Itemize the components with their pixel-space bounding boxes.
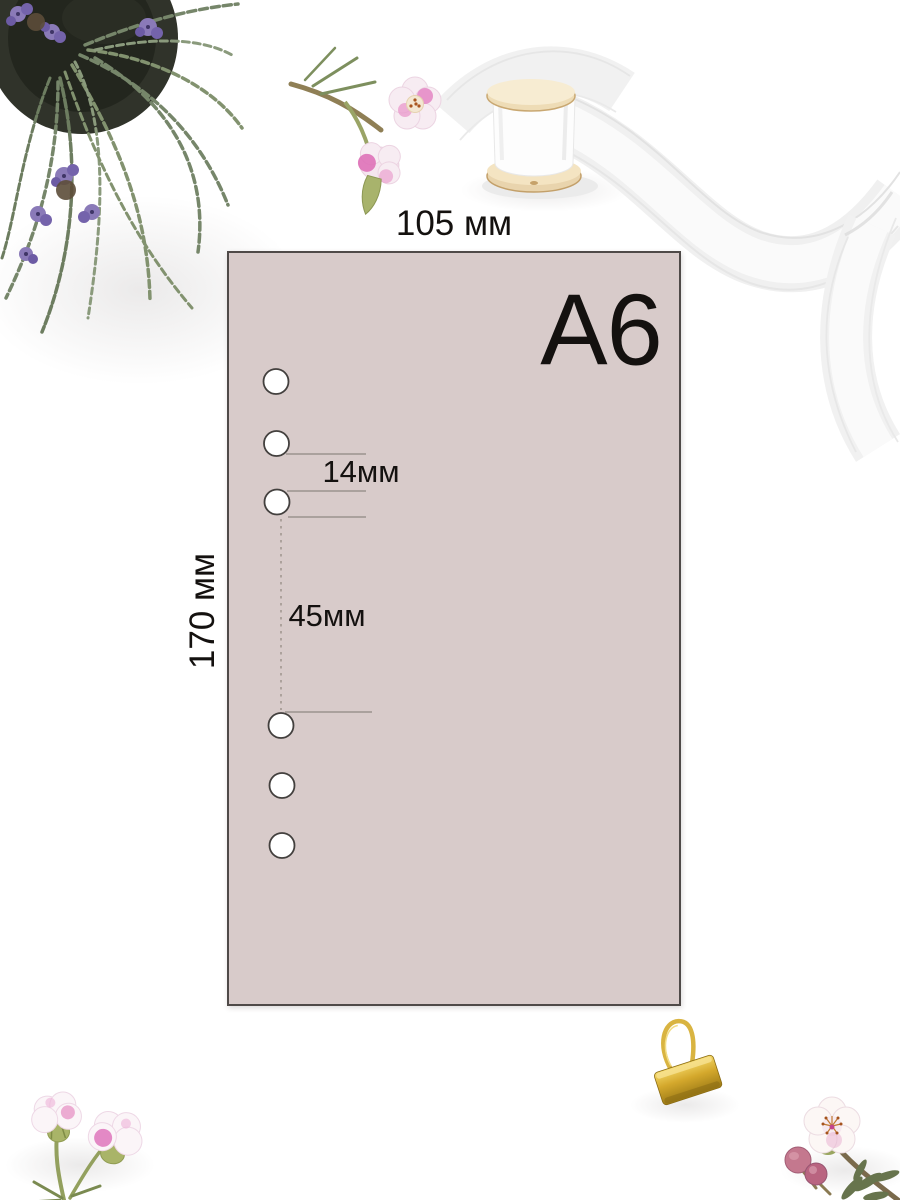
seed-pod bbox=[27, 13, 45, 31]
height-dimension-label: 170 мм bbox=[183, 553, 223, 669]
width-dimension-label: 105 мм bbox=[396, 204, 512, 244]
sheet-size-label: A6 bbox=[540, 274, 662, 389]
hole-spacing-label: 14мм bbox=[322, 454, 399, 490]
group-gap-label: 45мм bbox=[288, 598, 365, 634]
seed-pod bbox=[56, 180, 76, 200]
wax-flower-sprig-top bbox=[291, 48, 441, 220]
